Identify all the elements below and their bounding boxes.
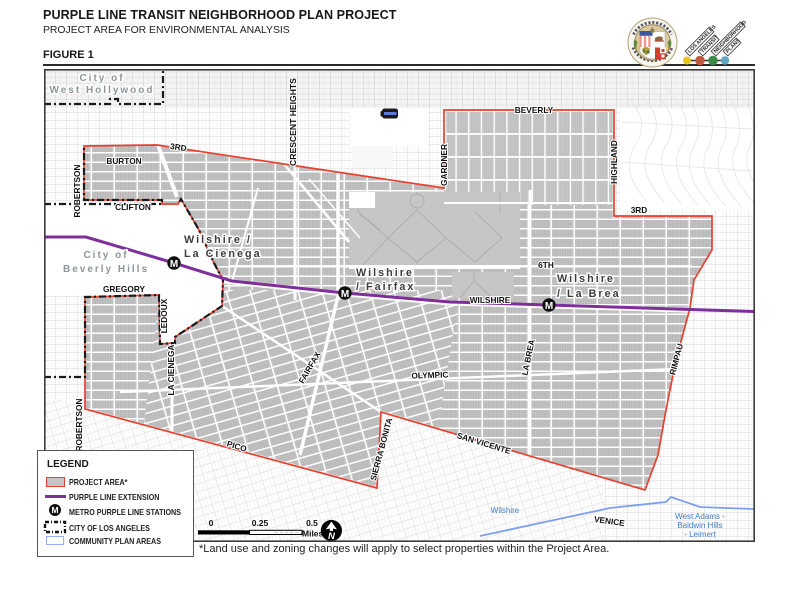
svg-text:West Adams -: West Adams - [675, 512, 725, 521]
svg-text:Miles: Miles [302, 529, 324, 539]
svg-text:ROBERTSON: ROBERTSON [72, 164, 82, 217]
svg-text:CRESCENT HEIGHTS: CRESCENT HEIGHTS [288, 78, 298, 166]
svg-text:/ Fairfax: / Fairfax [356, 281, 415, 293]
svg-text:GREGORY: GREGORY [103, 284, 146, 294]
svg-text:/ La Brea: / La Brea [557, 288, 621, 300]
svg-text:- Leimert: - Leimert [684, 530, 716, 539]
svg-text:Beverly Hills: Beverly Hills [63, 264, 149, 275]
svg-text:West Hollywood: West Hollywood [49, 85, 154, 96]
svg-text:WILSHIRE: WILSHIRE [470, 295, 511, 305]
svg-text:0.25: 0.25 [252, 518, 269, 528]
svg-text:Wilshire: Wilshire [557, 273, 615, 285]
svg-text:ROBERTSON: ROBERTSON [74, 398, 84, 451]
svg-text:City of: City of [83, 250, 128, 261]
svg-text:City of: City of [79, 73, 124, 84]
svg-text:LA CIENEGA: LA CIENEGA [166, 345, 176, 396]
svg-text:3RD: 3RD [631, 205, 648, 215]
svg-text:Wilshire /: Wilshire / [184, 234, 252, 246]
svg-text:0.5: 0.5 [306, 518, 318, 528]
svg-text:M: M [170, 259, 178, 270]
svg-text:OLYMPIC: OLYMPIC [411, 369, 448, 380]
svg-text:M: M [545, 301, 553, 312]
svg-text:Wilshire: Wilshire [356, 267, 414, 279]
svg-text:N: N [328, 531, 336, 542]
svg-text:HIGHLAND: HIGHLAND [609, 140, 619, 184]
svg-text:Wilshire: Wilshire [491, 506, 520, 515]
svg-text:CLIFTON: CLIFTON [115, 202, 151, 212]
svg-text:0: 0 [209, 518, 214, 528]
svg-text:GARDNER: GARDNER [439, 144, 449, 186]
svg-text:M: M [341, 289, 349, 300]
svg-text:LEDOUX: LEDOUX [159, 298, 169, 333]
svg-text:BEVERLY: BEVERLY [515, 105, 554, 115]
svg-text:BURTON: BURTON [106, 156, 141, 166]
svg-text:6TH: 6TH [538, 260, 554, 270]
svg-text:Baldwin Hills: Baldwin Hills [677, 521, 722, 530]
svg-text:La Cienega: La Cienega [184, 248, 262, 260]
